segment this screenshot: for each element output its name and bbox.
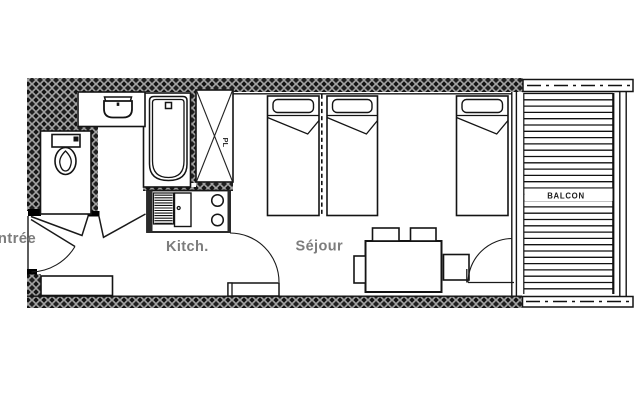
- svg-text:Entrée: Entrée: [0, 230, 36, 247]
- svg-text:Kitch.: Kitch.: [166, 239, 209, 255]
- svg-text:PL: PL: [221, 138, 230, 148]
- svg-text:Séjour: Séjour: [296, 239, 344, 255]
- svg-text:BALCON: BALCON: [547, 191, 585, 200]
